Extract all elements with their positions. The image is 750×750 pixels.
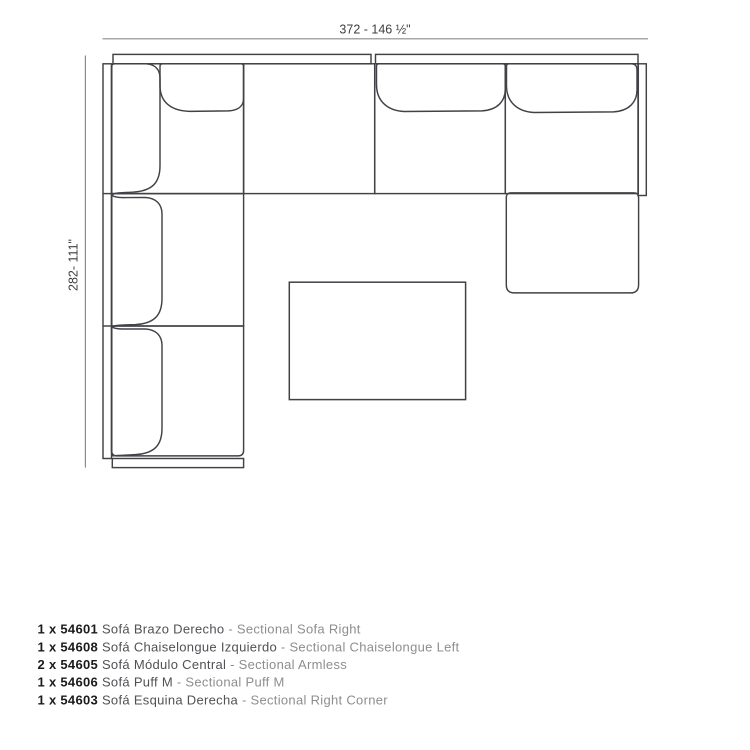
svg-text:2 x 54605 Sofá Módulo Central: 2 x 54605 Sofá Módulo Central - Sectiona… — [38, 657, 348, 672]
svg-text:1 x 54608 Sofá Chaiselongue Iz: 1 x 54608 Sofá Chaiselongue Izquierdo - … — [38, 639, 460, 654]
svg-text:1 x 54603 Sofá Esquina Derecha: 1 x 54603 Sofá Esquina Derecha - Section… — [38, 692, 389, 707]
svg-text:372 - 146 ½": 372 - 146 ½" — [339, 23, 410, 37]
svg-text:282- 111": 282- 111" — [67, 239, 81, 291]
svg-text:1 x 54601 Sofá Brazo Derecho -: 1 x 54601 Sofá Brazo Derecho - Sectional… — [38, 622, 361, 637]
svg-text:1 x 54606 Sofá Puff M - Sectio: 1 x 54606 Sofá Puff M - Sectional Puff M — [38, 675, 285, 690]
